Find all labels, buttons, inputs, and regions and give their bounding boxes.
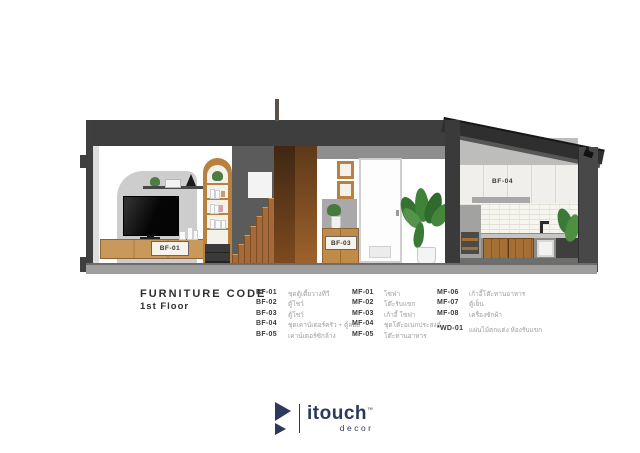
decor-jar: [221, 191, 225, 197]
legend-item: BF-03ตู้โชว์: [256, 310, 360, 320]
legend-desc: เก้าอี้โต๊ะทานอาหาร: [469, 289, 525, 299]
legend-code: BF-05: [256, 331, 288, 338]
logo-wordmark: itouch™: [307, 404, 374, 423]
floor-slab: [86, 263, 597, 274]
niche-shelf: [462, 247, 478, 250]
kitchen-wood-doors: [483, 238, 534, 260]
legend-desc: โต๊ะรับแขก: [384, 299, 415, 309]
legend-code: MF-06: [437, 289, 469, 296]
legend-code: BF-01: [256, 289, 288, 296]
right-exterior-wall: [578, 147, 598, 272]
decor-bottle: [221, 220, 226, 229]
legend-code: MF-02: [352, 299, 384, 306]
legend-item: MF-07ตู้เย็น: [437, 299, 542, 309]
legend-item: BF-04ชุดเคาน์เตอร์ครัว + ตู้ลอย: [256, 320, 360, 330]
legend-code: BF-03: [256, 310, 288, 317]
label-bf03: BF-03: [325, 236, 357, 250]
legend-desc: ตู้เย็น: [469, 299, 484, 309]
legend-desc: โซฟา: [384, 289, 400, 299]
door-handle: [396, 210, 399, 216]
itouch-decor-logo: itouch™ decor: [274, 402, 374, 435]
logo-text: itouch™ decor: [307, 404, 374, 433]
legend-desc: โต๊ะทานอาหาร: [384, 331, 427, 341]
legend-item: MF-04ชุดโต๊ะอเนกประสงค์: [352, 320, 441, 330]
lamp-icon: [186, 174, 196, 186]
vent-pipe: [275, 99, 279, 121]
legend-item: BF-05เคาน์เตอร์ซักล้าง: [256, 331, 360, 341]
legend-code: MF-04: [352, 320, 384, 327]
legend-item: MF-06เก้าอี้โต๊ะทานอาหาร: [437, 289, 542, 299]
niche-shelf: [462, 238, 478, 241]
wall-cabinet: [337, 181, 354, 199]
logo-mark-icon: [274, 402, 292, 435]
plant-icon: [150, 177, 160, 186]
decor-books: [165, 179, 181, 188]
legend-code: MF-08: [437, 310, 469, 317]
decor-bottle: [193, 230, 198, 240]
legend-item: MF-08เครื่องซักผ้า: [437, 310, 542, 320]
legend-item: MF-01โซฟา: [352, 289, 441, 299]
television: [123, 196, 179, 236]
flat-roof: [86, 120, 452, 147]
legend-title: FURNITURE CODE: [140, 288, 266, 300]
legend-desc: ชุดโต๊ะอเนกประสงค์: [384, 320, 441, 330]
stair-opening: [248, 172, 272, 198]
wall-section-tab: [80, 155, 86, 168]
plant-icon: [212, 171, 223, 181]
open-shelf: [537, 240, 554, 257]
decor-vase: [179, 231, 186, 240]
legend-desc: เก้าอี้ โซฟา: [384, 310, 416, 320]
decor-bottle: [215, 190, 220, 199]
stair-wood-panel: [274, 146, 295, 263]
label-bf04: BF-04: [492, 178, 513, 185]
legend-desc: ชุดตู้เตี้ยวางทีวี: [288, 289, 330, 299]
legend-column-mf1: MF-01โซฟา MF-02โต๊ะรับแขก MF-03เก้าอี้ โ…: [352, 289, 441, 341]
wall-return: [93, 146, 99, 263]
legend-code: MF-03: [352, 310, 384, 317]
legend-subtitle: 1st Floor: [140, 301, 189, 312]
left-exterior-wall: [86, 120, 93, 272]
shelf-drawers: [205, 244, 230, 263]
legend-desc: เคาน์เตอร์ซักล้าง: [288, 331, 336, 341]
legend-item: MF-03เก้าอี้ โซฟา: [352, 310, 441, 320]
legend-desc: เครื่องซักผ้า: [469, 310, 502, 320]
legend-code: *WD-01: [437, 325, 469, 332]
logo-tagline: decor: [340, 424, 374, 433]
label-bf01: BF-01: [151, 241, 189, 256]
legend-item: MF-02โต๊ะรับแขก: [352, 299, 441, 309]
legend-code: BF-02: [256, 299, 288, 306]
legend-desc: แผ่นไม้ตกแต่ง ห้องรับแขก: [469, 325, 542, 335]
legend-column-mf2: MF-06เก้าอี้โต๊ะทานอาหาร MF-07ตู้เย็น MF…: [437, 289, 542, 336]
door-vent: [369, 246, 391, 258]
shelf-bar: [207, 183, 228, 185]
legend-item: BF-02ตู้โชว์: [256, 299, 360, 309]
legend-desc: ตู้โชว์: [288, 299, 304, 309]
logo-divider: [299, 404, 300, 433]
legend-code: MF-07: [437, 299, 469, 306]
legend-column-bf: BF-01ชุดตู้เตี้ยวางทีวี BF-02ตู้โชว์ BF-…: [256, 289, 360, 341]
trademark-symbol: ™: [367, 408, 374, 414]
wall-cabinet: [337, 161, 354, 179]
legend-code: MF-01: [352, 289, 384, 296]
legend-code: MF-05: [352, 331, 384, 338]
legend-item: MF-05โต๊ะทานอาหาร: [352, 331, 441, 341]
legend-desc: ตู้โชว์: [288, 310, 304, 320]
legend-code: BF-04: [256, 320, 288, 327]
decor-item: [219, 205, 223, 212]
legend-note: *WD-01แผ่นไม้ตกแต่ง ห้องรับแขก: [437, 325, 542, 335]
open-niche: [461, 232, 479, 254]
drawing-sheet: BF-01 BF-03 BF-04: [0, 0, 640, 453]
stair-wood-panel: [295, 146, 317, 263]
legend-desc: ชุดเคาน์เตอร์ครัว + ตู้ลอย: [288, 320, 360, 330]
center-wall-column: [445, 120, 460, 272]
legend-item: BF-01ชุดตู้เตี้ยวางทีวี: [256, 289, 360, 299]
plant-icon: [327, 204, 341, 216]
